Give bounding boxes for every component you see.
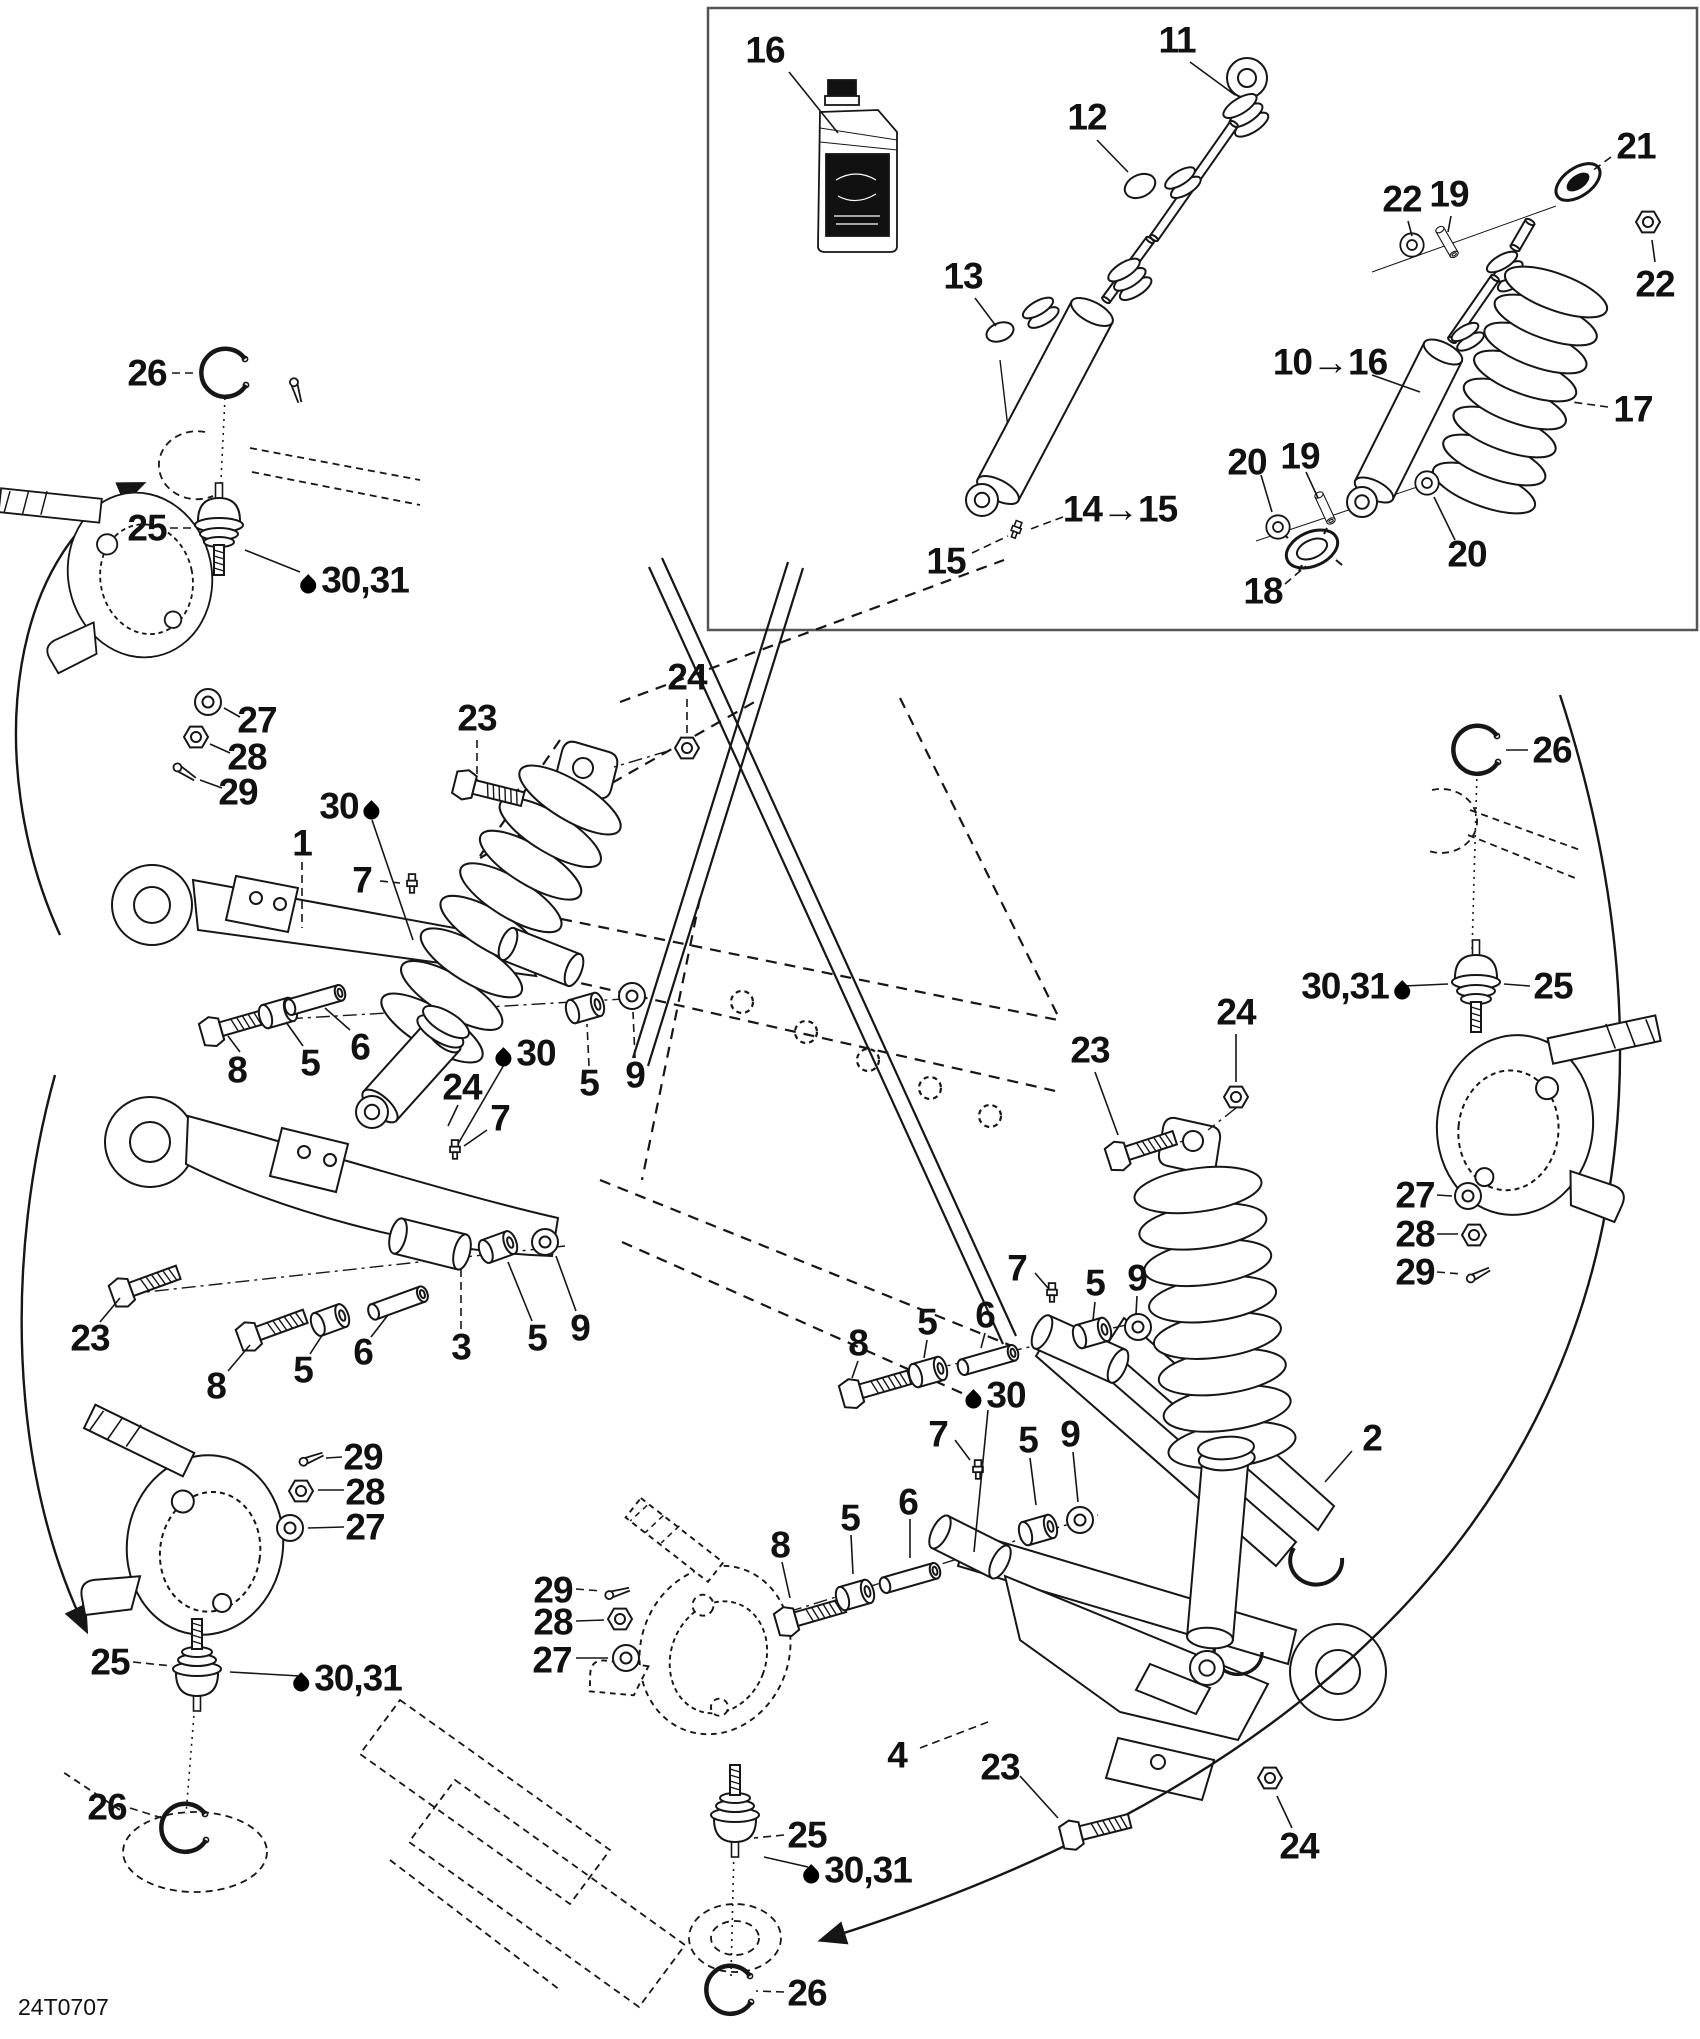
callout-27: 27 xyxy=(1395,1177,1434,1214)
callout-7: 7 xyxy=(928,1416,948,1453)
callout-20: 20 xyxy=(1227,444,1266,481)
oil-drop-icon xyxy=(1390,980,1413,1003)
callout-29: 29 xyxy=(343,1439,382,1476)
callout-13: 13 xyxy=(943,258,982,295)
callout-5: 5 xyxy=(840,1500,860,1537)
callout-26: 26 xyxy=(127,355,166,392)
callout-7: 7 xyxy=(352,862,372,899)
callout-19: 19 xyxy=(1429,176,1468,213)
callout-9: 9 xyxy=(1127,1260,1147,1297)
callout-30-31: 30,31 xyxy=(288,1660,402,1697)
callout-5: 5 xyxy=(917,1304,937,1341)
callout-30: 30 xyxy=(490,1035,555,1072)
callout-24: 24 xyxy=(667,659,706,696)
callout-29: 29 xyxy=(1395,1254,1434,1291)
oil-drop-icon xyxy=(297,574,320,597)
callout-5: 5 xyxy=(579,1065,599,1102)
callout-26: 26 xyxy=(1532,732,1571,769)
callout-4: 4 xyxy=(887,1737,907,1774)
callout-14-15: 14→15 xyxy=(1063,491,1177,528)
callout-2: 2 xyxy=(1362,1420,1382,1457)
callout-27: 27 xyxy=(237,702,276,739)
callout-11: 11 xyxy=(1158,22,1195,59)
callout-30-31: 30,31 xyxy=(295,562,409,599)
callout-9: 9 xyxy=(1060,1416,1080,1453)
exploded-parts-diagram: 1611121314→15152219212210→16172019201826… xyxy=(0,0,1700,2039)
callout-30-31: 30,31 xyxy=(1301,968,1415,1005)
oil-drop-icon xyxy=(800,1864,823,1887)
callout-7: 7 xyxy=(1007,1250,1027,1287)
callout-29: 29 xyxy=(218,774,257,811)
callout-9: 9 xyxy=(625,1057,645,1094)
oil-drop-icon xyxy=(290,1672,313,1695)
callout-25: 25 xyxy=(127,510,166,547)
callout-24: 24 xyxy=(1216,994,1255,1031)
callout-6: 6 xyxy=(350,1029,370,1066)
callout-18: 18 xyxy=(1243,573,1282,610)
callout-5: 5 xyxy=(527,1320,547,1357)
callout-16: 16 xyxy=(745,32,784,69)
callout-8: 8 xyxy=(848,1325,868,1362)
callout-22: 22 xyxy=(1635,266,1674,303)
callout-26: 26 xyxy=(787,1975,826,2012)
callout-25: 25 xyxy=(1533,968,1572,1005)
callout-1: 1 xyxy=(292,825,312,862)
callout-30: 30 xyxy=(960,1377,1025,1414)
callout-28: 28 xyxy=(533,1604,572,1641)
callout-24: 24 xyxy=(1279,1828,1318,1865)
callout-7: 7 xyxy=(490,1100,510,1137)
callout-23: 23 xyxy=(1070,1032,1109,1069)
callout-5: 5 xyxy=(300,1045,320,1082)
callout-19: 19 xyxy=(1280,438,1319,475)
callout-8: 8 xyxy=(227,1052,247,1089)
callout-6: 6 xyxy=(353,1334,373,1371)
callout-23: 23 xyxy=(980,1749,1019,1786)
callout-24: 24 xyxy=(442,1069,481,1106)
oil-drop-icon xyxy=(962,1389,985,1412)
callout-9: 9 xyxy=(570,1310,590,1347)
callout-6: 6 xyxy=(898,1484,918,1521)
callout-25: 25 xyxy=(787,1817,826,1854)
callout-23: 23 xyxy=(70,1320,109,1357)
callout-20: 20 xyxy=(1447,536,1486,573)
callout-22: 22 xyxy=(1382,181,1421,218)
callout-27: 27 xyxy=(345,1509,384,1546)
callout-3: 3 xyxy=(451,1329,471,1366)
callout-5: 5 xyxy=(1085,1265,1105,1302)
oil-drop-icon xyxy=(360,800,383,823)
callout-5: 5 xyxy=(293,1352,313,1389)
callout-12: 12 xyxy=(1067,99,1106,136)
callout-28: 28 xyxy=(1395,1216,1434,1253)
callout-6: 6 xyxy=(975,1297,995,1334)
callout-30-31: 30,31 xyxy=(798,1852,912,1889)
callout-28: 28 xyxy=(345,1474,384,1511)
callout-26: 26 xyxy=(87,1789,126,1826)
oil-drop-icon xyxy=(492,1047,515,1070)
callout-15: 15 xyxy=(926,543,965,580)
callout-8: 8 xyxy=(206,1368,226,1405)
callout-8: 8 xyxy=(770,1527,790,1564)
callout-5: 5 xyxy=(1018,1422,1038,1459)
callout-28: 28 xyxy=(227,739,266,776)
callout-21: 21 xyxy=(1616,128,1655,165)
callout-23: 23 xyxy=(457,700,496,737)
callout-25: 25 xyxy=(90,1644,129,1681)
callout-30: 30 xyxy=(319,788,384,825)
callout-labels: 1611121314→15152219212210→16172019201826… xyxy=(0,0,1700,2039)
callout-10-16: 10→16 xyxy=(1273,344,1387,381)
callout-27: 27 xyxy=(532,1642,571,1679)
callout-17: 17 xyxy=(1613,391,1652,428)
